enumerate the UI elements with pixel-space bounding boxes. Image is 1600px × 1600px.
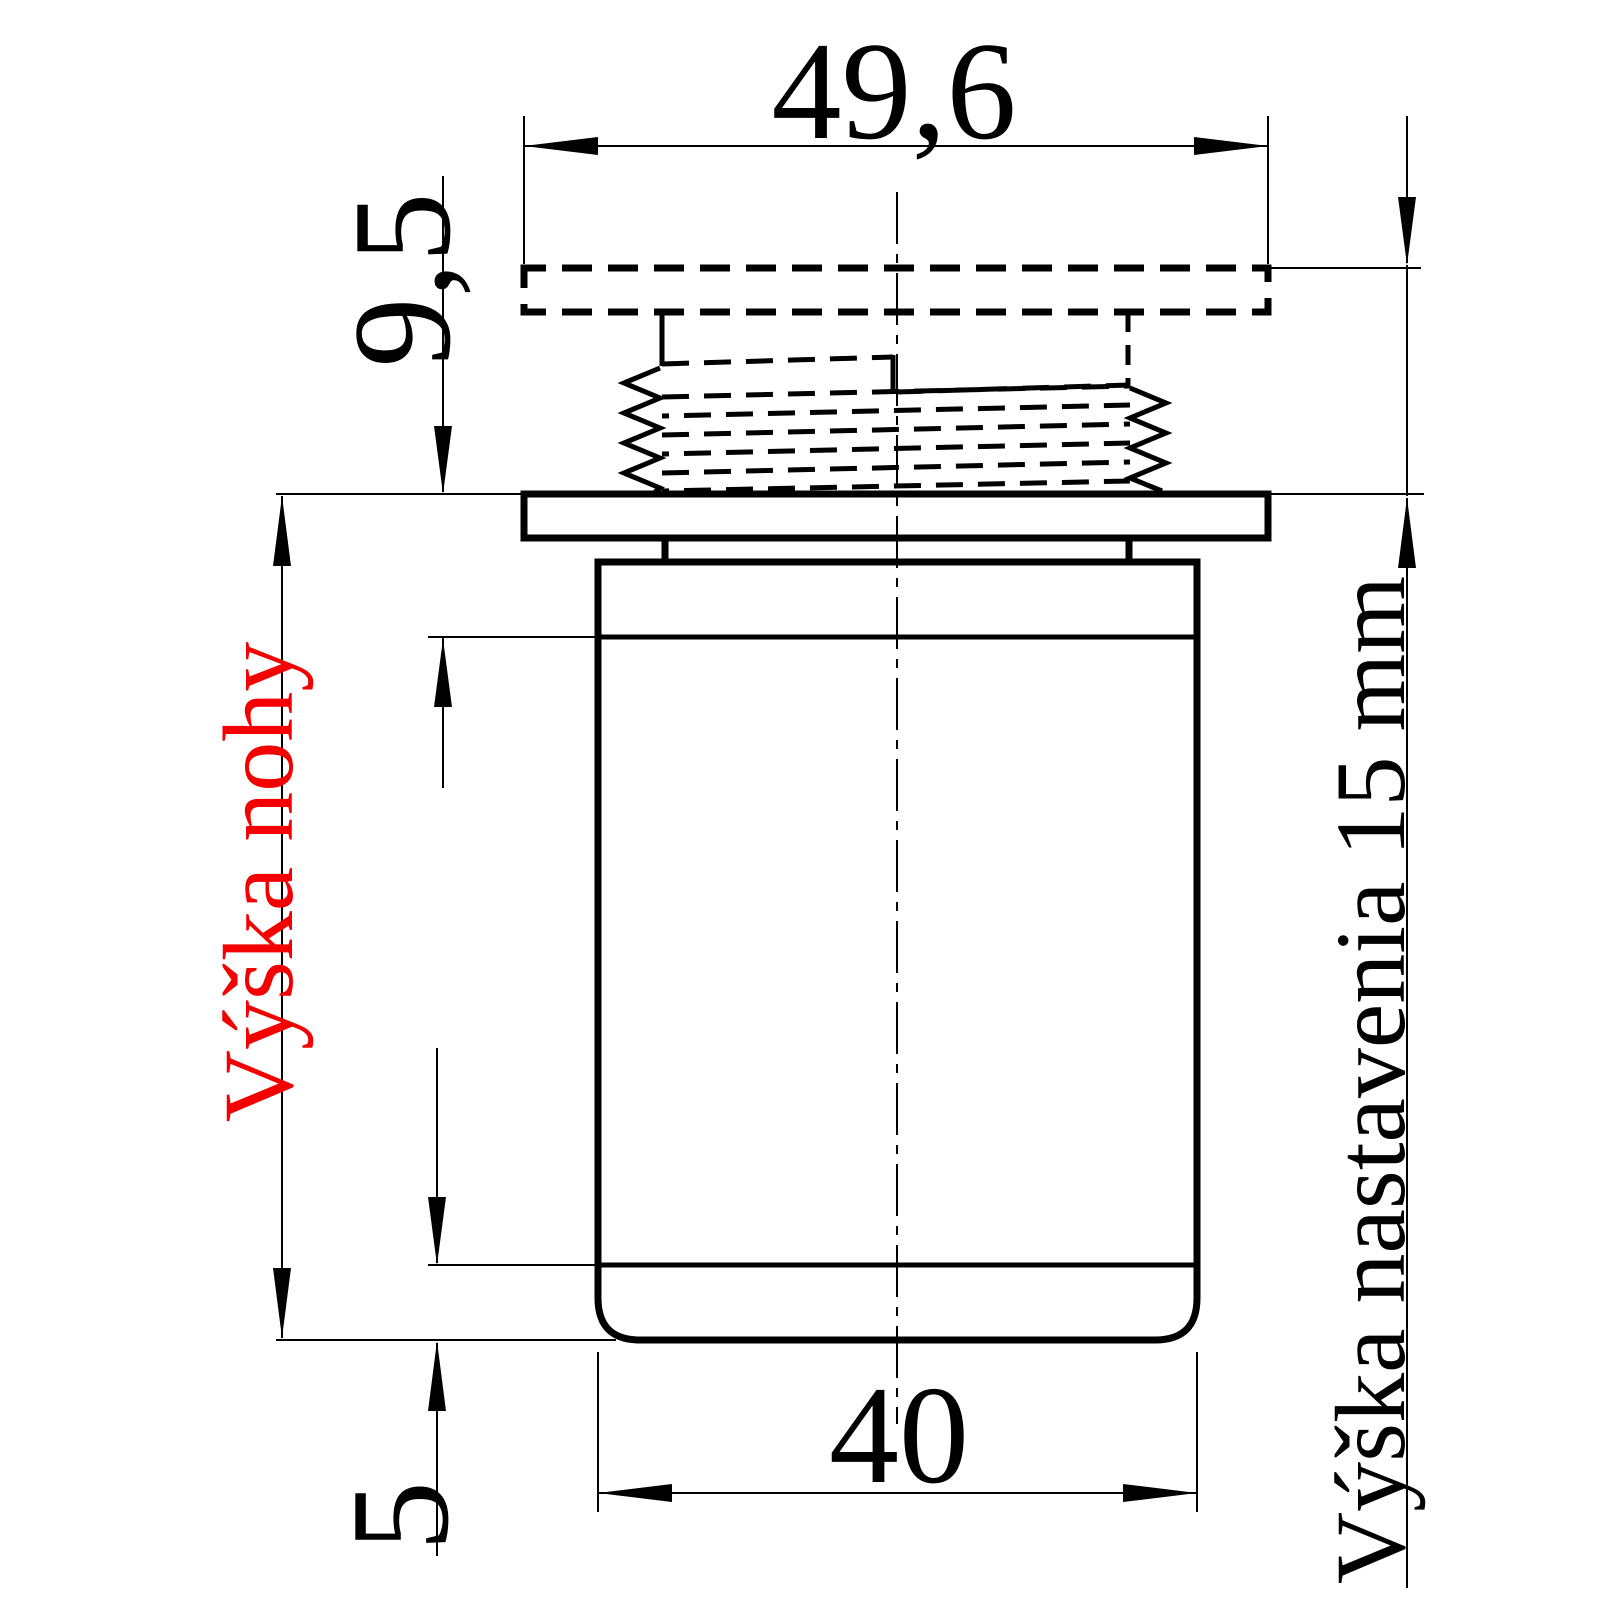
technical-drawing-page: 49,6 9,5 Výška nohy 5 40	[0, 0, 1600, 1600]
thread-top-edge-left	[662, 357, 893, 364]
thread-crest-line	[662, 405, 1130, 416]
arrow-down-icon	[1398, 197, 1416, 265]
arrow-up-icon	[434, 639, 452, 707]
thread-crest-line	[662, 424, 1130, 435]
arrow-down-icon	[273, 1268, 291, 1338]
dim-adjustment-label: Výška nastavenia 15 mm	[1315, 576, 1426, 1584]
arrow-left-icon	[524, 137, 598, 155]
arrow-right-icon	[1194, 137, 1268, 155]
dim-leg-height: Výška nohy	[203, 496, 616, 1340]
dim-bottom-band: 5	[323, 1048, 596, 1556]
arrow-up-icon	[428, 1341, 446, 1411]
dim-top-width-label: 49,6	[772, 14, 1017, 169]
dim-bottom-width-label: 40	[829, 1358, 969, 1513]
furniture-leg-dimension-drawing: 49,6 9,5 Výška nohy 5 40	[0, 0, 1600, 1600]
arrow-right-icon	[1123, 1484, 1197, 1502]
dim-thread-height: 9,5	[276, 176, 596, 788]
thread-flank-zigzag-left	[624, 368, 660, 492]
thread-flank-zigzag-right	[1130, 388, 1166, 491]
arrow-down-icon	[428, 1197, 446, 1265]
dim-bottom-width: 40	[598, 1352, 1197, 1513]
thread-hidden-section	[624, 312, 1166, 492]
dim-leg-height-label: Výška nohy	[203, 642, 314, 1123]
arrow-down-icon	[434, 426, 452, 494]
arrow-left-icon	[598, 1484, 672, 1502]
dim-thread-height-label: 9,5	[325, 193, 480, 368]
dim-adjustment-height: Výška nastavenia 15 mm	[1268, 116, 1426, 1588]
arrow-up-icon	[273, 496, 291, 566]
dim-bottom-band-label: 5	[323, 1481, 478, 1551]
